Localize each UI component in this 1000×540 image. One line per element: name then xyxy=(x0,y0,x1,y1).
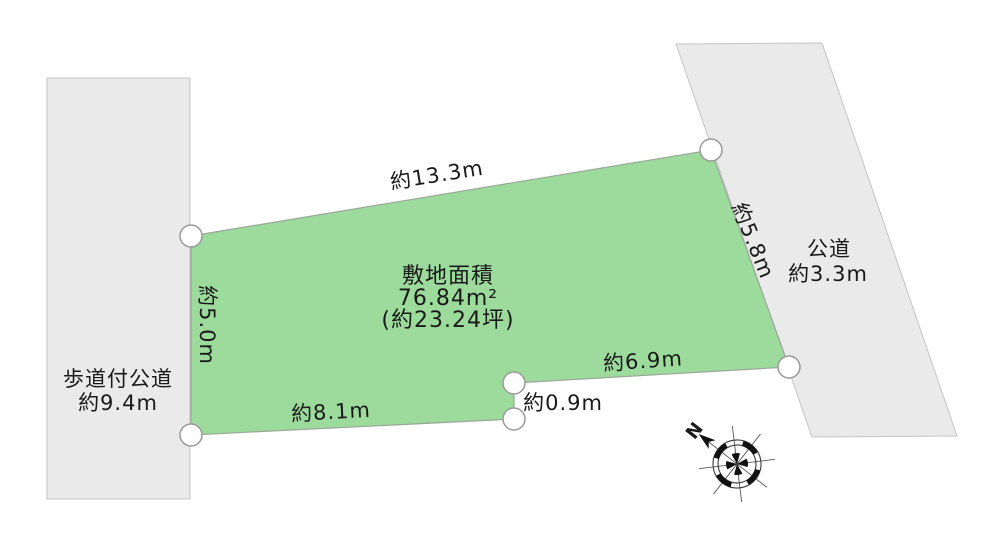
vertex-marker-bottom-left xyxy=(180,424,202,446)
compass-arc-s xyxy=(748,470,759,484)
vertex-marker-top-right xyxy=(700,139,722,161)
compass-arc-e xyxy=(743,442,757,453)
dim-step-label: 約0.9m xyxy=(523,391,603,415)
road-left-label: 歩道付公道 約9.4m xyxy=(63,367,173,415)
vertex-marker-step-top xyxy=(503,372,525,394)
compass-arc-w xyxy=(717,475,731,486)
vertex-marker-step-bottom xyxy=(503,408,525,430)
dim-bottom-label: 約8.1m xyxy=(290,398,371,426)
plot-area-tsubo: (約23.24坪) xyxy=(381,308,514,333)
compass-arc-n xyxy=(715,444,726,458)
road-left-width: 約9.4m xyxy=(78,391,158,415)
road-right-width: 約3.3m xyxy=(788,262,868,286)
dim-left-label: 約5.0m xyxy=(195,285,219,365)
road-left-name: 歩道付公道 xyxy=(63,367,173,391)
dim-top-label: 約13.3m xyxy=(388,156,485,194)
vertex-marker-top-left xyxy=(180,225,202,247)
road-right-name: 公道 xyxy=(807,237,851,261)
vertex-marker-right xyxy=(778,356,800,378)
road-left-shape xyxy=(47,78,190,499)
compass-rose: N xyxy=(663,395,790,518)
site-plan-diagram: 約13.3m 約5.0m 約5.8m 約6.9m 約0.9m 約8.1m 敷地面… xyxy=(0,0,1000,540)
